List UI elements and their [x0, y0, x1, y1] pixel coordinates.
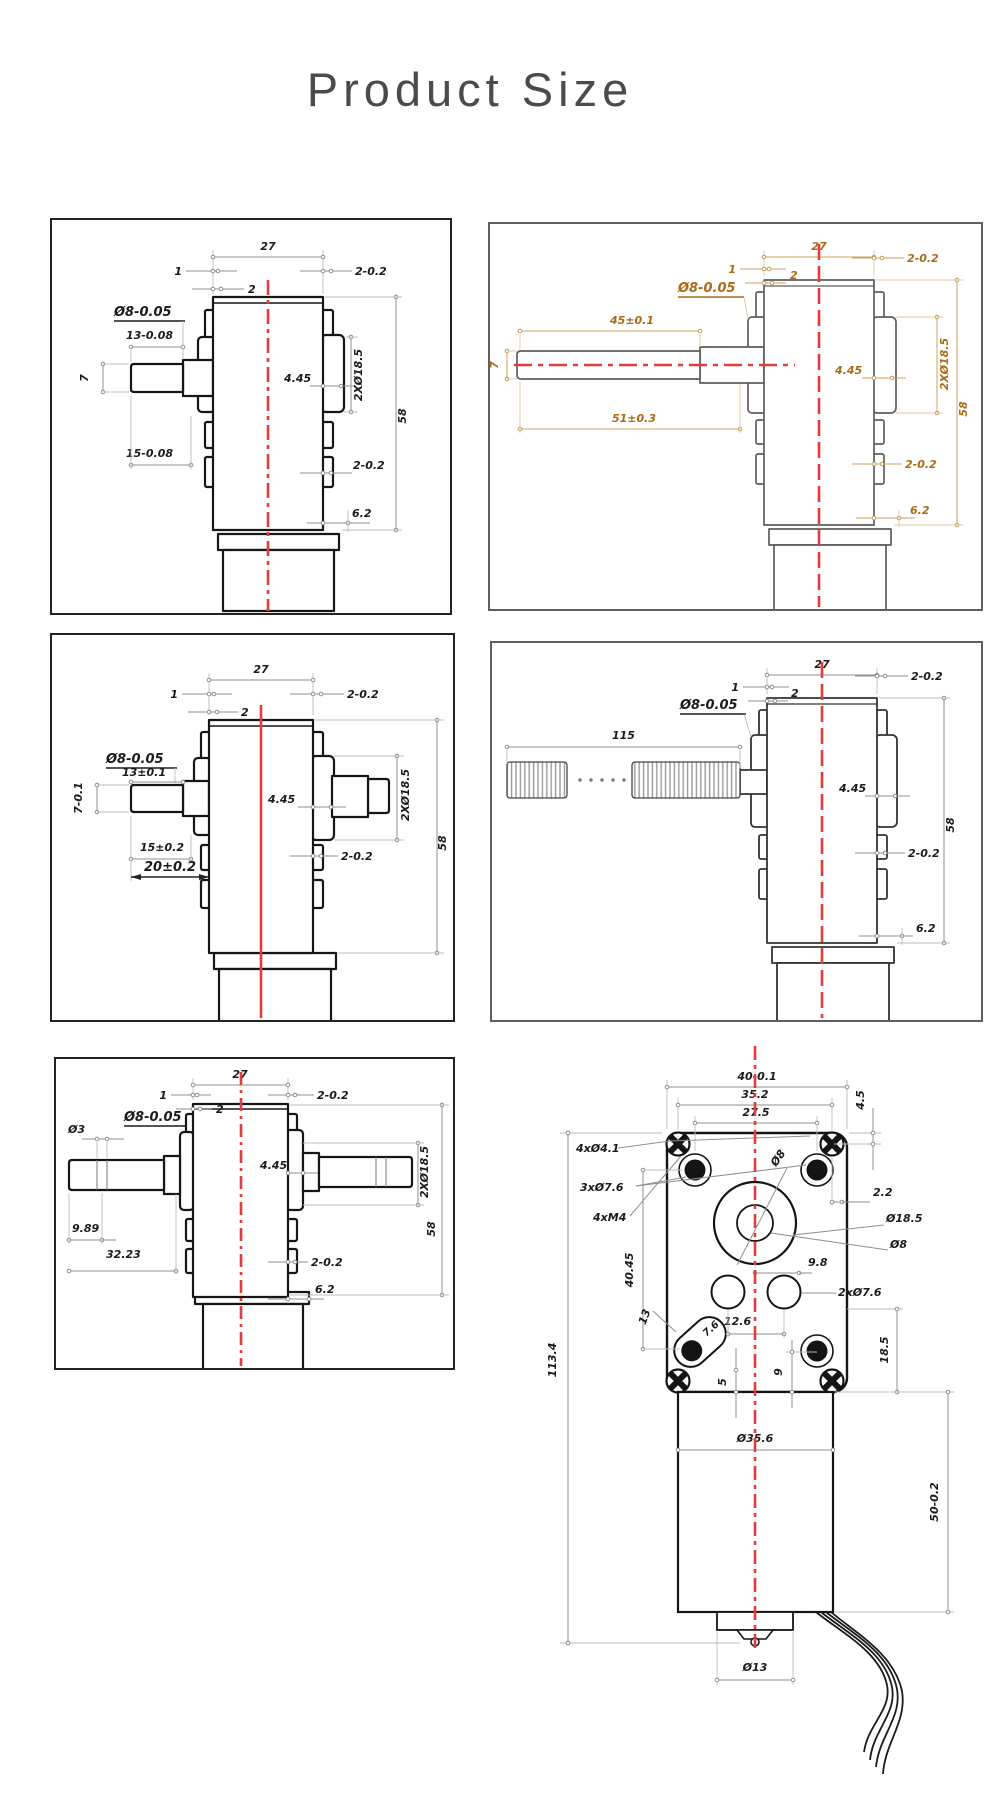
- dim-2-0.2-bot: 2-0.2: [905, 458, 937, 471]
- shaft-plain-end: [740, 770, 767, 794]
- dim-20: 20±0.2: [144, 860, 196, 875]
- dim-2: 2: [790, 269, 798, 282]
- drawing-single-shaft: 27 1 2 2-0.2 Ø8-0.05 13-0.08 7 15-0.08: [52, 220, 450, 613]
- motor-body: [774, 545, 886, 609]
- thread-segment-1: [507, 762, 567, 798]
- dim-1: 1: [159, 1089, 167, 1102]
- panel-mid-left: 27 1 2 2-0.2 Ø8-0.05 13±0.1 7-0.1 15±0.2…: [50, 633, 455, 1022]
- dim-7: 7-0.1: [72, 782, 85, 814]
- dim-2xd18.5: 2XØ18.5: [938, 338, 951, 391]
- dim-5: 5: [716, 1378, 729, 1386]
- panel-bottom-left: 27 1 2 2-0.2 Ø8-0.05 Ø3 4.45 2XØ18.5: [54, 1057, 455, 1370]
- dim-4.45: 4.45: [283, 372, 311, 385]
- motor-flange: [769, 529, 891, 545]
- dim-1: 1: [728, 263, 736, 276]
- dim-2: 2: [248, 283, 256, 296]
- dim-3xd7.6: 3xØ7.6: [580, 1181, 624, 1194]
- motor-flange: [772, 947, 894, 963]
- dim-1: 1: [174, 265, 182, 278]
- dim-dia3: Ø3: [67, 1123, 85, 1136]
- dim-18.5: 18.5: [878, 1336, 891, 1363]
- panel-bottom-right: 40-0.1 35.2 27.5 4.5 4xØ4.1 3xØ7.6 4xM4 …: [490, 1030, 990, 1785]
- dim-dia8-right: Ø8: [889, 1238, 907, 1251]
- shaft-step: [183, 360, 213, 396]
- dim-2xd7.6: 2xØ7.6: [838, 1286, 882, 1299]
- motor-body: [223, 550, 334, 611]
- dim-58: 58: [944, 817, 957, 833]
- dim-2xd18.5: 2XØ18.5: [418, 1146, 431, 1199]
- motor-flange: [218, 534, 339, 550]
- drawing-long-shaft: 45±0.1 51±0.3 7 Ø8-0.05 27 1 2: [490, 224, 981, 609]
- drawing-double-shaft: 27 1 2 2-0.2 Ø8-0.05 13±0.1 7-0.1 15±0.2…: [52, 635, 453, 1020]
- dim-50: 50-0.2: [928, 1482, 941, 1522]
- output-shaft: [131, 364, 183, 392]
- dim-2xd18.5: 2XØ18.5: [399, 769, 412, 822]
- dim-9.89: 9.89: [72, 1222, 99, 1235]
- part-outline: [507, 698, 897, 1020]
- dim-27: 27: [253, 663, 269, 676]
- motor-body: [203, 1304, 303, 1368]
- dim-6.2: 6.2: [352, 507, 372, 520]
- dim-9: 9: [772, 1368, 785, 1376]
- dim-115: 115: [612, 729, 635, 742]
- dim-6.2: 6.2: [315, 1283, 335, 1296]
- dim-13: 13±0.1: [122, 766, 166, 779]
- dim-2-0.2-top: 2-0.2: [907, 252, 939, 265]
- dim-7: 7: [490, 361, 501, 369]
- dim-dia8: Ø8-0.05: [679, 698, 738, 713]
- motor-flange: [214, 953, 336, 969]
- dim-6.2: 6.2: [916, 922, 936, 935]
- dim-9.8: 9.8: [808, 1256, 828, 1269]
- dim-2-0.2-top: 2-0.2: [317, 1089, 349, 1102]
- dim-2xd18.5: 2XØ18.5: [352, 349, 365, 402]
- dim-13: 13: [636, 1307, 654, 1326]
- drawing-threaded-shaft: 115 Ø8-0.05 27 1 2 2-0.2 4.45 58: [492, 643, 981, 1020]
- dim-45: 45±0.1: [609, 314, 654, 327]
- dim-13: 13-0.08: [126, 329, 173, 342]
- right-shaft-step: [303, 1153, 319, 1191]
- left-shaft: [131, 785, 183, 812]
- dim-2: 2: [241, 706, 249, 719]
- dim-1: 1: [170, 688, 178, 701]
- motor-wires: [816, 1612, 903, 1774]
- dim-58: 58: [425, 1221, 438, 1237]
- dim-2: 2: [216, 1103, 224, 1116]
- dim-2-0.2-bot: 2-0.2: [908, 847, 940, 860]
- dim-15: 15-0.08: [126, 447, 173, 460]
- break-dots: [578, 778, 625, 781]
- page-title: Product Size: [0, 62, 940, 117]
- lower-hole-right: [768, 1276, 801, 1309]
- dim-2.2: 2.2: [873, 1186, 893, 1199]
- dim-4.45: 4.45: [259, 1159, 287, 1172]
- left-shaft: [69, 1160, 164, 1190]
- dim-6.2: 6.2: [910, 504, 930, 517]
- thread-segment-2: [632, 762, 740, 798]
- dim-2-0.2-top: 2-0.2: [355, 265, 387, 278]
- dim-2-0.2-bot: 2-0.2: [341, 850, 373, 863]
- dim-2-0.2-top: 2-0.2: [347, 688, 379, 701]
- left-shaft-step: [164, 1156, 180, 1194]
- dim-4xd4.1: 4xØ4.1: [575, 1142, 620, 1155]
- dim-2-0.2-bot: 2-0.2: [311, 1256, 343, 1269]
- dim-51: 51±0.3: [612, 412, 656, 425]
- page: Product Size 27: [0, 0, 1000, 1795]
- dim-dia18.5: Ø18.5: [885, 1212, 923, 1225]
- dim-dia13: Ø13: [742, 1661, 768, 1674]
- part-outline: [517, 280, 896, 609]
- dim-7: 7: [78, 374, 91, 382]
- drawing-double-long-shaft: 27 1 2 2-0.2 Ø8-0.05 Ø3 4.45 2XØ18.5: [56, 1059, 453, 1368]
- dim-2-0.2-top: 2-0.2: [911, 670, 943, 683]
- dim-4.5: 4.5: [854, 1090, 867, 1111]
- dim-dia8: Ø8-0.05: [123, 1110, 182, 1125]
- left-shaft-step: [183, 781, 209, 816]
- dim-dia8: Ø8-0.05: [677, 281, 736, 296]
- dim-4.45: 4.45: [834, 364, 862, 377]
- right-shaft-step: [332, 776, 368, 817]
- dim-58: 58: [957, 401, 970, 417]
- right-shaft-tip: [368, 779, 389, 813]
- part-outline: [662, 1128, 902, 1774]
- panel-top-right: 45±0.1 51±0.3 7 Ø8-0.05 27 1 2: [488, 222, 983, 611]
- dim-40.45: 40.45: [623, 1252, 636, 1288]
- dim-4xm4: 4xM4: [592, 1211, 626, 1224]
- dim-113.4: 113.4: [546, 1343, 559, 1378]
- dim-dia8: Ø8-0.05: [105, 752, 164, 767]
- dim-4.45: 4.45: [267, 793, 295, 806]
- dim-58: 58: [436, 835, 449, 851]
- dim-2: 2: [791, 687, 799, 700]
- dim-58: 58: [396, 408, 409, 424]
- dim-2-0.2-bot: 2-0.2: [353, 459, 385, 472]
- drawing-face-view: 40-0.1 35.2 27.5 4.5 4xØ4.1 3xØ7.6 4xM4 …: [490, 1030, 990, 1785]
- dim-32.23: 32.23: [106, 1248, 141, 1261]
- panel-mid-right: 115 Ø8-0.05 27 1 2 2-0.2 4.45 58: [490, 641, 983, 1022]
- dim-4.45: 4.45: [838, 782, 866, 795]
- motor-body: [777, 963, 889, 1020]
- dim-1: 1: [731, 681, 739, 694]
- motor-body: [219, 969, 331, 1020]
- right-shaft: [319, 1157, 412, 1187]
- dim-15: 15±0.2: [140, 841, 184, 854]
- lower-hole-left: [712, 1276, 745, 1309]
- dim-dia8: Ø8-0.05: [113, 305, 172, 320]
- dim-40: 40-0.1: [736, 1070, 776, 1083]
- panel-top-left: 27 1 2 2-0.2 Ø8-0.05 13-0.08 7 15-0.08: [50, 218, 452, 615]
- dim-27: 27: [260, 240, 276, 253]
